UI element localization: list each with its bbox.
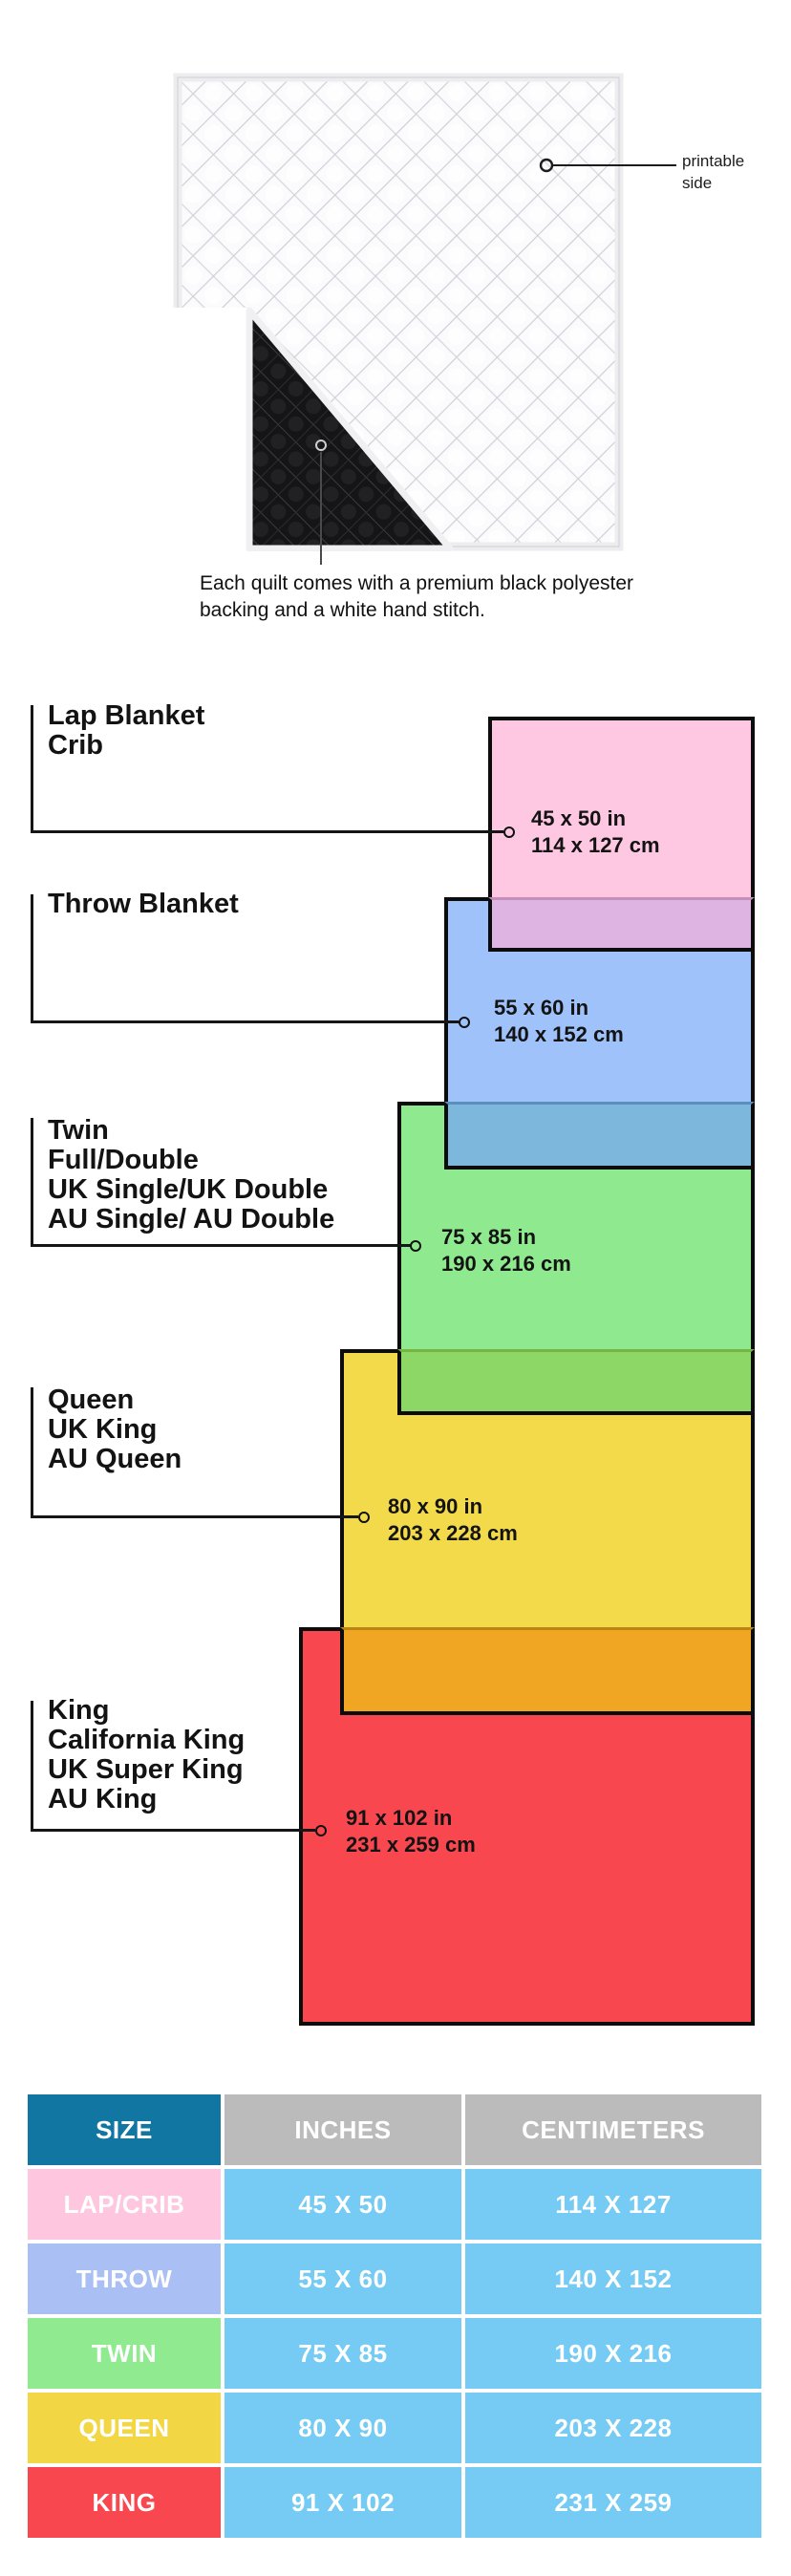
heading-line: Throw Blanket — [48, 889, 239, 919]
connector-vertical-throw — [31, 894, 33, 1022]
dims-twin: 75 x 85 in 190 x 216 cm — [441, 1224, 571, 1277]
table-header-size: SIZE — [28, 2094, 221, 2165]
heading-line: AU King — [48, 1784, 157, 1814]
table-row-label: KING — [28, 2467, 221, 2538]
dims-cm: 140 x 152 cm — [494, 1022, 624, 1046]
connector-ring-twin — [410, 1240, 421, 1252]
heading-line: Full/Double — [48, 1145, 199, 1175]
dims-lap-crib: 45 x 50 in 114 x 127 cm — [531, 805, 660, 859]
heading-line: Lap Blanket — [48, 700, 204, 731]
table-cell-cm: 190 X 216 — [465, 2318, 761, 2389]
table-cell-cm: 140 X 152 — [465, 2243, 761, 2314]
heading-line: AU Queen — [48, 1444, 182, 1474]
table-cell-inches: 91 X 102 — [224, 2467, 461, 2538]
table-row-label: LAP/CRIB — [28, 2169, 221, 2240]
dims-cm: 190 x 216 cm — [441, 1252, 571, 1276]
overlap-throw-twin — [444, 1102, 755, 1170]
overlap-twin-queen — [397, 1349, 755, 1415]
printable-side-label: printable side — [682, 150, 774, 194]
table-row-label: THROW — [28, 2243, 221, 2314]
heading-line: Crib — [48, 730, 103, 761]
table-cell-inches: 55 X 60 — [224, 2243, 461, 2314]
heading-line: UK Super King — [48, 1754, 244, 1785]
table-row-label: QUEEN — [28, 2393, 221, 2463]
quilt-caption: Each quilt comes with a premium black po… — [200, 570, 658, 624]
connector-ring-queen — [358, 1512, 370, 1523]
table-row-label: TWIN — [28, 2318, 221, 2389]
connector-vertical-queen — [31, 1387, 33, 1517]
table-cell-cm: 203 X 228 — [465, 2393, 761, 2463]
heading-king: King California King UK Super King AU Ki… — [48, 1696, 245, 1814]
overlap-queen-king — [340, 1627, 755, 1715]
heading-line: California King — [48, 1725, 245, 1755]
quilt-product-image — [173, 73, 624, 551]
dims-queen: 80 x 90 in 203 x 228 cm — [388, 1493, 518, 1547]
backing-pointer-line — [320, 452, 322, 565]
fold-cutout — [173, 308, 249, 551]
size-table: SIZE INCHES CENTIMETERS LAP/CRIB 45 X 50… — [28, 2094, 761, 2538]
connector-horizontal-queen — [31, 1515, 358, 1518]
table-cell-inches: 75 X 85 — [224, 2318, 461, 2389]
table-cell-inches: 45 X 50 — [224, 2169, 461, 2240]
dims-inches: 75 x 85 in — [441, 1225, 536, 1249]
backing-marker-ring — [315, 440, 327, 451]
heading-line: Twin — [48, 1115, 109, 1146]
dims-inches: 55 x 60 in — [494, 996, 588, 1020]
dims-cm: 231 x 259 cm — [346, 1833, 476, 1857]
overlap-lap-throw — [488, 897, 755, 952]
connector-ring-throw — [459, 1017, 470, 1028]
dims-king: 91 x 102 in 231 x 259 cm — [346, 1805, 476, 1858]
connector-ring-king — [315, 1825, 327, 1836]
heading-line: AU Single/ AU Double — [48, 1204, 334, 1234]
connector-ring-lap — [503, 826, 515, 838]
connector-vertical-lap — [31, 705, 33, 832]
heading-line: King — [48, 1695, 109, 1726]
connector-horizontal-king — [31, 1829, 315, 1832]
table-cell-inches: 80 X 90 — [224, 2393, 461, 2463]
heading-line: Queen — [48, 1385, 134, 1415]
connector-horizontal-twin — [31, 1244, 411, 1247]
table-cell-cm: 231 X 259 — [465, 2467, 761, 2538]
size-chart-infographic: printable side Each quilt comes with a p… — [0, 0, 791, 2576]
connector-horizontal-throw — [31, 1020, 459, 1023]
heading-throw: Throw Blanket — [48, 890, 239, 919]
heading-twin: Twin Full/Double UK Single/UK Double AU … — [48, 1116, 334, 1234]
dims-inches: 45 x 50 in — [531, 806, 626, 830]
connector-vertical-twin — [31, 1118, 33, 1246]
dims-cm: 114 x 127 cm — [531, 833, 660, 857]
dims-inches: 91 x 102 in — [346, 1806, 452, 1830]
dims-cm: 203 x 228 cm — [388, 1521, 518, 1545]
heading-line: UK Single/UK Double — [48, 1174, 328, 1205]
dims-inches: 80 x 90 in — [388, 1494, 482, 1518]
table-cell-cm: 114 X 127 — [465, 2169, 761, 2240]
connector-horizontal-lap — [31, 830, 503, 833]
printable-side-pointer-line — [552, 164, 676, 166]
dims-throw: 55 x 60 in 140 x 152 cm — [494, 995, 624, 1048]
heading-line: UK King — [48, 1414, 157, 1445]
heading-queen: Queen UK King AU Queen — [48, 1385, 182, 1474]
caption-line-1: Each quilt comes with a premium black po… — [200, 572, 633, 594]
caption-line-2: backing and a white hand stitch. — [200, 599, 485, 621]
heading-lap-crib: Lap Blanket Crib — [48, 701, 204, 761]
table-header-inches: INCHES — [224, 2094, 461, 2165]
connector-vertical-king — [31, 1701, 33, 1831]
table-header-centimeters: CENTIMETERS — [465, 2094, 761, 2165]
